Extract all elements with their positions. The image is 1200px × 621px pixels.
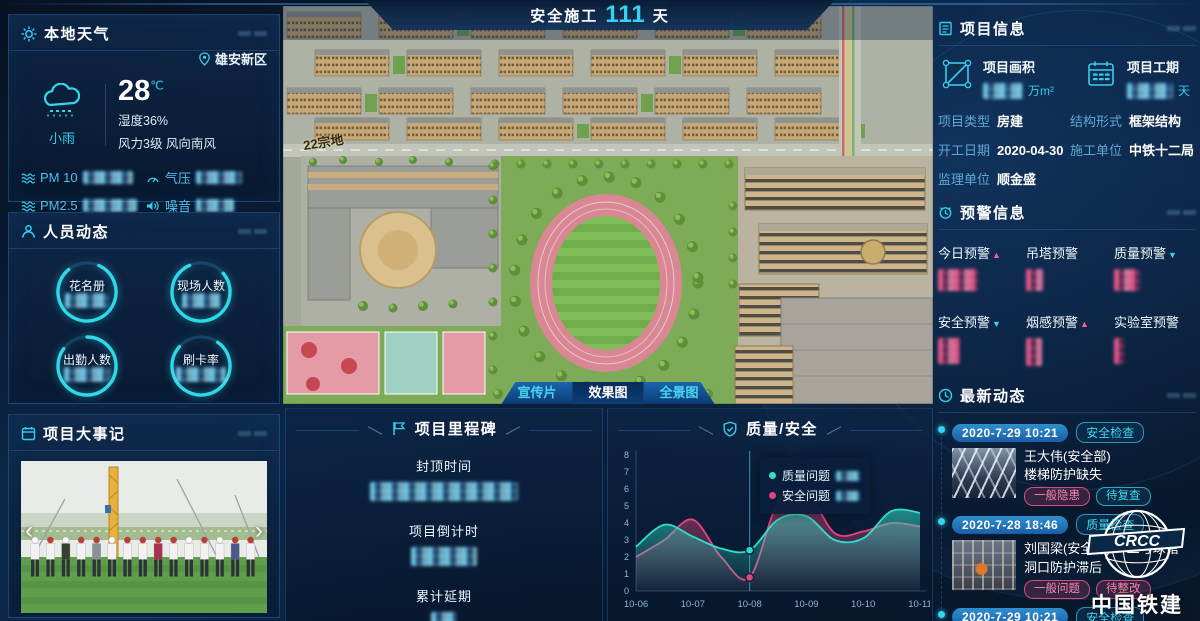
metric-label: 气压 bbox=[165, 168, 191, 187]
personnel-gauges: 花名册 现场人数 出勤人数 刷卡率 bbox=[9, 249, 279, 409]
svg-text:2: 2 bbox=[624, 552, 629, 562]
project-info-title: 项目信息 bbox=[960, 18, 1026, 39]
gauge-roster: 花名册 bbox=[54, 259, 120, 325]
trend-up-icon: ▲ bbox=[992, 250, 1001, 260]
region-label: 雄安新区 bbox=[198, 49, 267, 68]
banner-suffix: 天 bbox=[653, 5, 670, 26]
weather-title: 本地天气 bbox=[44, 23, 110, 44]
events-title: 项目大事记 bbox=[43, 423, 126, 444]
stat-project-duration: 项目工期 天 bbox=[1084, 57, 1190, 99]
field-contractor: 施工单位中铁十二局 bbox=[1070, 140, 1196, 159]
document-icon bbox=[938, 21, 953, 36]
blurred-value bbox=[64, 367, 110, 382]
milestone-delay: 累计延期 bbox=[286, 586, 602, 621]
gauge-label: 刷卡率 bbox=[168, 351, 234, 368]
location-pin-icon bbox=[198, 52, 211, 66]
waves-icon bbox=[21, 200, 35, 212]
safety-days-banner: 安全施工 111 天 bbox=[365, 0, 835, 30]
svg-text:6: 6 bbox=[624, 484, 629, 494]
feed-item[interactable]: 2020-7-29 10:21 安全检查 王大伟(安全部) 楼梯防护缺失 一般隐… bbox=[938, 422, 1196, 506]
svg-text:10-08: 10-08 bbox=[737, 599, 761, 610]
crcc-name: 中国铁建 bbox=[1078, 589, 1196, 619]
gauge-onsite: 现场人数 bbox=[168, 259, 234, 325]
blurred-value bbox=[196, 171, 242, 184]
blurred-value bbox=[1127, 83, 1173, 99]
warnings-section: 预警信息 今日预警▲ 吊塔预警 质量预警▼ 安全预警▼ 烟感预警▲ 实验室预警 bbox=[938, 202, 1196, 385]
legend-dot-quality bbox=[769, 472, 776, 479]
personnel-panel: 人员动态 花名册 现场人数 出勤人数 刷卡率 bbox=[8, 212, 280, 404]
svg-text:10-06: 10-06 bbox=[624, 599, 648, 610]
svg-text:10-10: 10-10 bbox=[851, 599, 875, 610]
dashboard: 安全施工 111 天 bbox=[0, 0, 1200, 621]
timeline-dot bbox=[938, 426, 945, 433]
blurred-value bbox=[938, 338, 960, 364]
metric-label: PM 10 bbox=[40, 170, 78, 185]
svg-text:8: 8 bbox=[624, 450, 629, 460]
feed-thumbnail[interactable] bbox=[952, 540, 1016, 590]
weather-condition: 小雨 bbox=[21, 128, 103, 147]
feed-title: 最新动态 bbox=[960, 385, 1026, 406]
blurred-value bbox=[83, 171, 133, 184]
panel-deco bbox=[238, 229, 267, 234]
gauge-attendance: 出勤人数 bbox=[54, 333, 120, 399]
feed-thumbnail[interactable] bbox=[952, 448, 1016, 498]
shield-check-icon bbox=[722, 421, 738, 437]
milestone-events-panel: 项目大事记 ‹ › bbox=[8, 414, 280, 618]
clock-icon bbox=[938, 388, 953, 403]
legend-dot-safety bbox=[769, 492, 776, 499]
aerial-render-view[interactable]: 22宗地 宣传片 效果图 全景图 bbox=[283, 6, 933, 404]
banner-prefix: 安全施工 bbox=[530, 5, 598, 26]
milestone-label: 封顶时间 bbox=[286, 456, 602, 475]
blurred-value bbox=[370, 482, 518, 501]
stat-unit: 天 bbox=[1178, 82, 1190, 99]
metric-label: PM2.5 bbox=[40, 198, 78, 213]
crcc-globe-icon: CRCC bbox=[1078, 506, 1196, 584]
event-photo[interactable]: ‹ › bbox=[21, 461, 267, 613]
photo-prev-arrow[interactable]: ‹ bbox=[25, 519, 33, 543]
chart-title: 质量/安全 bbox=[746, 418, 818, 439]
view-button-render[interactable]: 效果图 bbox=[572, 382, 643, 404]
view-mode-switch: 宣传片 效果图 全景图 bbox=[501, 382, 714, 404]
blurred-value bbox=[983, 83, 1023, 99]
humidity: 湿度36% bbox=[118, 110, 216, 129]
metric-pressure: 气压 bbox=[146, 168, 267, 187]
blurred-value bbox=[938, 269, 978, 291]
project-milestone-panel: 项目里程碑 封顶时间 项目倒计时 累计延期 bbox=[285, 408, 603, 621]
svg-text:10-07: 10-07 bbox=[681, 599, 705, 610]
warnings-title: 预警信息 bbox=[960, 202, 1026, 223]
aerial-render-scene bbox=[283, 6, 933, 404]
weather-panel: 本地天气 雄安新区 小雨 28℃ 湿度36% 风力3级 风向南风 bbox=[8, 14, 280, 202]
milestone-label: 项目倒计时 bbox=[286, 521, 602, 540]
waves-icon bbox=[21, 172, 35, 184]
panel-deco bbox=[238, 31, 267, 36]
calendar-icon bbox=[1084, 57, 1118, 99]
blurred-value bbox=[1026, 338, 1042, 366]
blurred-value bbox=[65, 293, 109, 308]
svg-text:10-09: 10-09 bbox=[794, 599, 818, 610]
gauge-label: 花名册 bbox=[54, 277, 120, 294]
warning-today: 今日预警▲ bbox=[938, 243, 1020, 294]
svg-text:7: 7 bbox=[624, 467, 629, 477]
legend-quality-label: 质量问题 bbox=[782, 467, 830, 484]
field-start-date: 开工日期2020-04-30 bbox=[938, 140, 1066, 159]
warning-smoke: 烟感预警▲ bbox=[1026, 312, 1108, 369]
stat-label: 项目画积 bbox=[983, 57, 1054, 76]
blurred-value bbox=[1114, 269, 1140, 291]
trend-up-icon: ▲ bbox=[1080, 319, 1089, 329]
photo-next-arrow[interactable]: › bbox=[255, 519, 263, 543]
svg-text:4: 4 bbox=[624, 518, 629, 528]
blurred-value bbox=[182, 293, 220, 308]
gauge-label: 出勤人数 bbox=[54, 351, 120, 368]
warning-safety: 安全预警▼ bbox=[938, 312, 1020, 369]
region-name: 雄安新区 bbox=[215, 49, 267, 68]
panel-deco bbox=[1167, 210, 1196, 215]
timeline-dot bbox=[938, 611, 945, 618]
trend-down-icon: ▼ bbox=[992, 319, 1001, 329]
gauge-icon bbox=[146, 172, 160, 184]
legend-safety-label: 安全问题 bbox=[782, 487, 830, 504]
svg-text:1: 1 bbox=[624, 569, 629, 579]
field-project-type: 项目类型房建 bbox=[938, 111, 1066, 130]
rain-cloud-icon bbox=[38, 83, 86, 119]
trend-down-icon: ▼ bbox=[1168, 250, 1177, 260]
chart-tooltip: 质量问题 安全问题 bbox=[760, 457, 870, 514]
milestone-topping-time: 封顶时间 bbox=[286, 456, 602, 506]
svg-text:10-11: 10-11 bbox=[908, 599, 930, 610]
svg-text:5: 5 bbox=[624, 501, 629, 511]
divider bbox=[105, 84, 106, 146]
stat-label: 项目工期 bbox=[1127, 57, 1190, 76]
blurred-value bbox=[836, 471, 860, 481]
weather-metrics: PM 10 气压 PM2.5 噪音 bbox=[9, 158, 279, 215]
quality-safety-chart: 01234567810-0610-0710-0810-0910-1010-11 … bbox=[612, 443, 928, 620]
milestone-countdown: 项目倒计时 bbox=[286, 521, 602, 571]
milestone-title: 项目里程碑 bbox=[415, 418, 498, 439]
metric-pm10: PM 10 bbox=[21, 168, 142, 187]
feed-person: 王大伟(安全部) bbox=[1024, 448, 1151, 466]
personnel-title: 人员动态 bbox=[43, 221, 109, 242]
severity-tag: 一般隐患 bbox=[1024, 487, 1090, 506]
flag-icon bbox=[391, 421, 407, 436]
event-photo-image bbox=[21, 461, 267, 613]
warnings-grid: 今日预警▲ 吊塔预警 质量预警▼ 安全预警▼ 烟感预警▲ 实验室预警 bbox=[938, 239, 1196, 385]
warning-crane: 吊塔预警 bbox=[1026, 243, 1108, 294]
blurred-value bbox=[411, 547, 477, 566]
field-supervisor: 监理单位顺金盛 bbox=[938, 169, 1066, 188]
panel-deco bbox=[238, 431, 267, 436]
gauge-swipe-rate: 刷卡率 bbox=[168, 333, 234, 399]
warning-quality: 质量预警▼ bbox=[1114, 243, 1196, 294]
stat-unit: 万m² bbox=[1028, 82, 1054, 99]
crcc-text: CRCC bbox=[1114, 533, 1161, 550]
panel-deco bbox=[1167, 26, 1196, 31]
blurred-value bbox=[1026, 269, 1043, 291]
quality-safety-panel: 质量/安全 01234567810-0610-0710-0810-0910-10… bbox=[607, 408, 933, 621]
stat-project-area: 项目画积 万m² bbox=[940, 57, 1054, 99]
blurred-value bbox=[431, 612, 457, 621]
panel-deco bbox=[1167, 393, 1196, 398]
timeline-dot bbox=[938, 518, 945, 525]
feed-type-badge: 安全检查 bbox=[1076, 422, 1144, 443]
blurred-value bbox=[83, 199, 137, 212]
svg-text:0: 0 bbox=[624, 586, 629, 596]
milestone-label: 累计延期 bbox=[286, 586, 602, 605]
feed-issue: 楼梯防护缺失 bbox=[1024, 466, 1151, 484]
speaker-icon bbox=[146, 200, 160, 212]
blurred-value bbox=[196, 199, 234, 212]
area-icon bbox=[940, 57, 974, 99]
temperature-unit: ℃ bbox=[150, 78, 163, 92]
blurred-value bbox=[836, 491, 860, 501]
alarm-bell-icon bbox=[938, 205, 953, 220]
feed-date: 2020-7-29 10:21 bbox=[952, 608, 1068, 621]
banner-days-count: 111 bbox=[605, 3, 645, 27]
blurred-value bbox=[176, 367, 226, 382]
sun-gear-icon bbox=[21, 26, 37, 42]
crcc-logo: CRCC 中国铁建 bbox=[1078, 506, 1196, 619]
gauge-label: 现场人数 bbox=[168, 277, 234, 294]
person-icon bbox=[21, 224, 36, 239]
temperature: 28℃ bbox=[118, 77, 216, 106]
project-info-section: 项目信息 项目画积 万m² bbox=[938, 18, 1196, 202]
blurred-value bbox=[1114, 338, 1124, 364]
svg-text:3: 3 bbox=[624, 535, 629, 545]
feed-date: 2020-7-28 18:46 bbox=[952, 516, 1068, 534]
feed-date: 2020-7-29 10:21 bbox=[952, 424, 1068, 442]
project-fields: 项目类型房建 结构形式框架结构 开工日期2020-04-30 施工单位中铁十二局… bbox=[938, 111, 1196, 202]
wind: 风力3级 风向南风 bbox=[118, 133, 216, 152]
field-structure: 结构形式框架结构 bbox=[1070, 111, 1196, 130]
calendar-page-icon bbox=[21, 426, 36, 441]
warning-lab: 实验室预警 bbox=[1114, 312, 1196, 369]
status-tag: 待复查 bbox=[1096, 487, 1151, 506]
